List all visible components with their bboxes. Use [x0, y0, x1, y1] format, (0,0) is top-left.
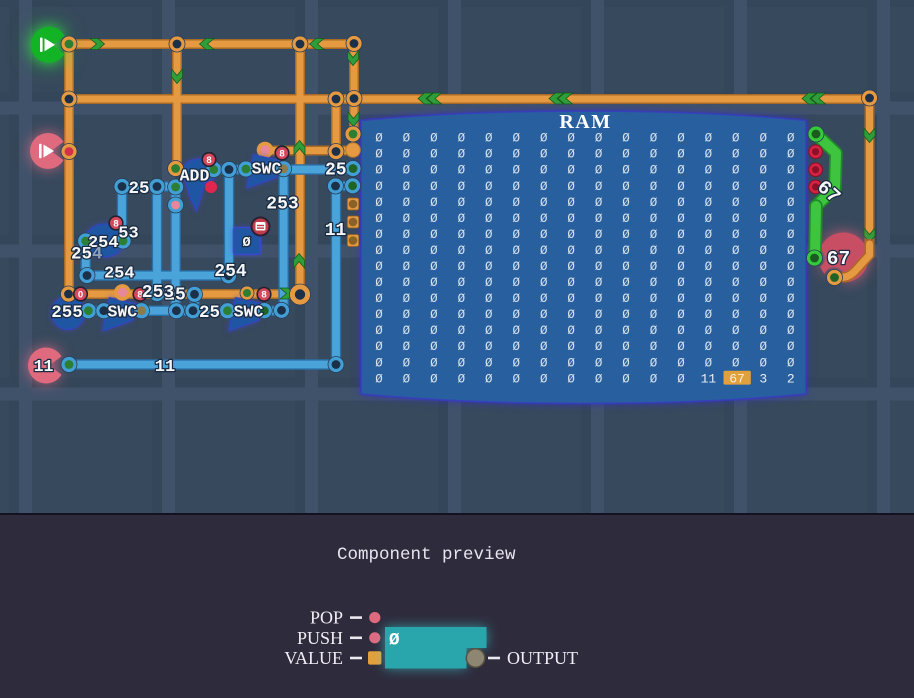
svg-text:RAM: RAM — [559, 111, 611, 133]
svg-text:Ø: Ø — [512, 164, 520, 178]
svg-text:Ø: Ø — [403, 164, 411, 178]
svg-text:ADD: ADD — [180, 167, 210, 186]
svg-text:Ø: Ø — [540, 212, 548, 226]
svg-text:67: 67 — [729, 371, 745, 386]
svg-text:Ø: Ø — [705, 276, 713, 290]
svg-text:67: 67 — [827, 248, 850, 270]
svg-text:Ø: Ø — [375, 196, 383, 210]
svg-text:Ø: Ø — [540, 292, 548, 306]
svg-text:Ø: Ø — [485, 212, 493, 226]
svg-text:Ø: Ø — [622, 372, 630, 386]
svg-text:25: 25 — [128, 179, 149, 199]
svg-text:Ø: Ø — [760, 244, 768, 258]
svg-text:Ø: Ø — [403, 180, 411, 194]
svg-text:Ø: Ø — [622, 356, 630, 370]
svg-text:Ø: Ø — [512, 132, 520, 146]
svg-text:Ø: Ø — [732, 212, 740, 226]
svg-text:254: 254 — [104, 265, 135, 284]
svg-text:Ø: Ø — [512, 292, 520, 306]
svg-text:Ø: Ø — [540, 228, 548, 242]
svg-text:Ø: Ø — [650, 292, 658, 306]
svg-text:Ø: Ø — [458, 308, 466, 322]
svg-text:Ø: Ø — [430, 324, 438, 338]
svg-text:Ø: Ø — [677, 372, 685, 386]
svg-text:Ø: Ø — [567, 196, 575, 210]
svg-text:Ø: Ø — [650, 260, 658, 274]
svg-text:11: 11 — [701, 371, 717, 386]
svg-text:Ø: Ø — [540, 180, 548, 194]
svg-text:Ø: Ø — [485, 324, 493, 338]
svg-text:Ø: Ø — [732, 276, 740, 290]
svg-text:Ø: Ø — [458, 372, 466, 386]
svg-text:Ø: Ø — [375, 276, 383, 290]
svg-text:Ø: Ø — [485, 372, 493, 386]
svg-text:Ø: Ø — [732, 260, 740, 274]
svg-text:Ø: Ø — [677, 196, 685, 210]
svg-text:Ø: Ø — [732, 196, 740, 210]
svg-text:Ø: Ø — [540, 132, 548, 146]
svg-text:Ø: Ø — [787, 340, 795, 354]
svg-text:Ø: Ø — [705, 196, 713, 210]
svg-text:Ø: Ø — [732, 148, 740, 162]
svg-text:OUTPUT: OUTPUT — [507, 648, 578, 668]
svg-text:Ø: Ø — [567, 308, 575, 322]
svg-text:25: 25 — [325, 160, 347, 180]
svg-text:Ø: Ø — [650, 308, 658, 322]
svg-text:Ø: Ø — [512, 308, 520, 322]
svg-text:Ø: Ø — [458, 244, 466, 258]
svg-text:Ø: Ø — [732, 164, 740, 178]
svg-text:Ø: Ø — [375, 324, 383, 338]
svg-text:Ø: Ø — [595, 308, 603, 322]
svg-text:Ø: Ø — [650, 244, 658, 258]
svg-text:Ø: Ø — [677, 276, 685, 290]
svg-text:Ø: Ø — [595, 340, 603, 354]
svg-text:Ø: Ø — [567, 356, 575, 370]
svg-text:Ø: Ø — [732, 292, 740, 306]
svg-text:Ø: Ø — [787, 180, 795, 194]
svg-text:Ø: Ø — [375, 372, 383, 386]
svg-text:Ø: Ø — [403, 372, 411, 386]
svg-text:Ø: Ø — [705, 180, 713, 194]
svg-text:Ø: Ø — [595, 356, 603, 370]
svg-text:Ø: Ø — [485, 228, 493, 242]
svg-text:Ø: Ø — [760, 340, 768, 354]
svg-text:Ø: Ø — [732, 324, 740, 338]
svg-text:Ø: Ø — [732, 228, 740, 242]
svg-text:Ø: Ø — [485, 132, 493, 146]
svg-text:Ø: Ø — [430, 196, 438, 210]
svg-text:Ø: Ø — [375, 180, 383, 194]
svg-text:Ø: Ø — [760, 308, 768, 322]
svg-text:Ø: Ø — [430, 244, 438, 258]
svg-text:Ø: Ø — [540, 372, 548, 386]
svg-text:Ø: Ø — [650, 180, 658, 194]
svg-text:Ø: Ø — [540, 324, 548, 338]
svg-text:Ø: Ø — [677, 212, 685, 226]
svg-text:Ø: Ø — [567, 228, 575, 242]
svg-text:Ø: Ø — [403, 148, 411, 162]
svg-text:Ø: Ø — [403, 356, 411, 370]
svg-text:Ø: Ø — [787, 324, 795, 338]
svg-text:Ø: Ø — [375, 340, 383, 354]
svg-text:Ø: Ø — [595, 260, 603, 274]
svg-text:Ø: Ø — [403, 228, 411, 242]
svg-text:Ø: Ø — [430, 292, 438, 306]
svg-text:53: 53 — [118, 224, 138, 243]
svg-text:Ø: Ø — [567, 212, 575, 226]
svg-text:Ø: Ø — [512, 212, 520, 226]
svg-text:Ø: Ø — [705, 244, 713, 258]
svg-text:Ø: Ø — [760, 356, 768, 370]
svg-text:Ø: Ø — [567, 260, 575, 274]
svg-text:8: 8 — [206, 155, 211, 166]
svg-text:Ø: Ø — [650, 196, 658, 210]
svg-text:Ø: Ø — [375, 308, 383, 322]
svg-text:Ø: Ø — [677, 340, 685, 354]
svg-text:Ø: Ø — [705, 132, 713, 146]
svg-text:Ø: Ø — [787, 132, 795, 146]
svg-text:Ø: Ø — [760, 196, 768, 210]
svg-text:Ø: Ø — [458, 180, 466, 194]
svg-text:Ø: Ø — [567, 148, 575, 162]
svg-text:11: 11 — [325, 221, 347, 241]
svg-text:Ø: Ø — [458, 148, 466, 162]
svg-text:Ø: Ø — [705, 148, 713, 162]
svg-text:Ø: Ø — [375, 260, 383, 274]
svg-text:Ø: Ø — [705, 340, 713, 354]
svg-text:Ø: Ø — [677, 244, 685, 258]
svg-text:Ø: Ø — [732, 132, 740, 146]
svg-text:11: 11 — [34, 357, 54, 376]
svg-text:Ø: Ø — [485, 164, 493, 178]
svg-text:Ø: Ø — [622, 228, 630, 242]
svg-text:Ø: Ø — [705, 324, 713, 338]
svg-text:Ø: Ø — [512, 260, 520, 274]
svg-text:Ø: Ø — [595, 324, 603, 338]
svg-text:Ø: Ø — [760, 292, 768, 306]
svg-text:Ø: Ø — [595, 196, 603, 210]
svg-text:Ø: Ø — [622, 196, 630, 210]
svg-text:Ø: Ø — [485, 340, 493, 354]
svg-text:PUSH: PUSH — [297, 628, 343, 648]
svg-text:Ø: Ø — [485, 292, 493, 306]
svg-text:Ø: Ø — [567, 164, 575, 178]
svg-text:Ø: Ø — [403, 212, 411, 226]
svg-text:8: 8 — [279, 148, 284, 159]
svg-text:Ø: Ø — [622, 340, 630, 354]
svg-text:Ø: Ø — [705, 164, 713, 178]
svg-text:Ø: Ø — [403, 292, 411, 306]
svg-text:Ø: Ø — [512, 196, 520, 210]
svg-text:Ø: Ø — [458, 260, 466, 274]
svg-text:Ø: Ø — [760, 228, 768, 242]
svg-text:255: 255 — [51, 303, 83, 323]
svg-text:Ø: Ø — [430, 164, 438, 178]
svg-text:Ø: Ø — [485, 148, 493, 162]
svg-text:Ø: Ø — [650, 356, 658, 370]
svg-text:SWC: SWC — [107, 302, 137, 321]
svg-text:Ø: Ø — [595, 132, 603, 146]
svg-text:Ø: Ø — [512, 180, 520, 194]
svg-text:Ø: Ø — [430, 228, 438, 242]
svg-text:0: 0 — [78, 289, 83, 300]
svg-text:Ø: Ø — [760, 276, 768, 290]
svg-text:Ø: Ø — [677, 324, 685, 338]
svg-text:Ø: Ø — [430, 340, 438, 354]
svg-text:Ø: Ø — [622, 132, 630, 146]
svg-text:Ø: Ø — [375, 212, 383, 226]
svg-text:Ø: Ø — [622, 260, 630, 274]
svg-text:Ø: Ø — [732, 244, 740, 258]
svg-text:Ø: Ø — [760, 180, 768, 194]
svg-text:Ø: Ø — [430, 212, 438, 226]
svg-text:Ø: Ø — [458, 228, 466, 242]
svg-text:Ø: Ø — [760, 164, 768, 178]
svg-text:Ø: Ø — [595, 148, 603, 162]
svg-text:Ø: Ø — [760, 132, 768, 146]
svg-text:Ø: Ø — [512, 340, 520, 354]
svg-text:25: 25 — [199, 303, 220, 323]
svg-text:Ø: Ø — [389, 631, 400, 651]
svg-text:Ø: Ø — [430, 276, 438, 290]
svg-text:Ø: Ø — [485, 244, 493, 258]
svg-text:Ø: Ø — [458, 340, 466, 354]
svg-text:Ø: Ø — [403, 276, 411, 290]
svg-text:Ø: Ø — [512, 372, 520, 386]
svg-text:Ø: Ø — [403, 308, 411, 322]
svg-text:Ø: Ø — [567, 372, 575, 386]
svg-text:Ø: Ø — [485, 260, 493, 274]
svg-text:Ø: Ø — [567, 244, 575, 258]
svg-text:Ø: Ø — [458, 324, 466, 338]
svg-text:Ø: Ø — [787, 260, 795, 274]
svg-text:Ø: Ø — [458, 356, 466, 370]
svg-text:Ø: Ø — [622, 308, 630, 322]
svg-text:Ø: Ø — [485, 356, 493, 370]
svg-text:Ø: Ø — [375, 244, 383, 258]
svg-text:Ø: Ø — [458, 132, 466, 146]
svg-text:Ø: Ø — [595, 164, 603, 178]
svg-text:Ø: Ø — [787, 228, 795, 242]
svg-text:Ø: Ø — [512, 356, 520, 370]
svg-text:Ø: Ø — [567, 180, 575, 194]
svg-text:Ø: Ø — [787, 164, 795, 178]
svg-text:Ø: Ø — [512, 324, 520, 338]
svg-text:Ø: Ø — [705, 212, 713, 226]
svg-text:Ø: Ø — [650, 372, 658, 386]
svg-text:Ø: Ø — [595, 212, 603, 226]
svg-text:Ø: Ø — [540, 196, 548, 210]
svg-text:Ø: Ø — [403, 196, 411, 210]
svg-text:Ø: Ø — [677, 148, 685, 162]
svg-text:Ø: Ø — [595, 276, 603, 290]
svg-text:Ø: Ø — [677, 164, 685, 178]
svg-text:Ø: Ø — [732, 340, 740, 354]
svg-text:Ø: Ø — [403, 324, 411, 338]
svg-text:Ø: Ø — [485, 308, 493, 322]
svg-text:Ø: Ø — [540, 276, 548, 290]
svg-text:Ø: Ø — [595, 180, 603, 194]
svg-text:Ø: Ø — [458, 276, 466, 290]
svg-text:Ø: Ø — [622, 180, 630, 194]
svg-text:Ø: Ø — [705, 308, 713, 322]
svg-text:Ø: Ø — [622, 212, 630, 226]
svg-text:Ø: Ø — [375, 292, 383, 306]
svg-text:Ø: Ø — [622, 292, 630, 306]
svg-text:Ø: Ø — [430, 372, 438, 386]
svg-text:Ø: Ø — [458, 212, 466, 226]
svg-text:Ø: Ø — [595, 292, 603, 306]
svg-text:Ø: Ø — [512, 148, 520, 162]
svg-text:Ø: Ø — [787, 244, 795, 258]
svg-text:Ø: Ø — [732, 356, 740, 370]
svg-text:Ø: Ø — [622, 148, 630, 162]
svg-text:Ø: Ø — [787, 356, 795, 370]
svg-text:Ø: Ø — [760, 148, 768, 162]
svg-text:Ø: Ø — [430, 260, 438, 274]
svg-text:Ø: Ø — [567, 340, 575, 354]
svg-text:Ø: Ø — [760, 212, 768, 226]
svg-text:Ø: Ø — [705, 260, 713, 274]
svg-text:Ø: Ø — [650, 324, 658, 338]
svg-text:3: 3 — [759, 371, 767, 386]
svg-text:253: 253 — [266, 194, 298, 214]
svg-text:Ø: Ø — [375, 356, 383, 370]
svg-text:Ø: Ø — [732, 180, 740, 194]
svg-text:254: 254 — [71, 244, 103, 264]
svg-text:Ø: Ø — [567, 292, 575, 306]
svg-text:11: 11 — [155, 358, 175, 377]
svg-text:Ø: Ø — [375, 164, 383, 178]
svg-text:Ø: Ø — [512, 228, 520, 242]
svg-text:Ø: Ø — [567, 132, 575, 146]
svg-text:Ø: Ø — [375, 148, 383, 162]
svg-text:Ø: Ø — [650, 276, 658, 290]
svg-text:Ø: Ø — [403, 132, 411, 146]
svg-text:Ø: Ø — [430, 356, 438, 370]
svg-text:Ø: Ø — [540, 244, 548, 258]
svg-text:Ø: Ø — [375, 228, 383, 242]
svg-text:Ø: Ø — [787, 276, 795, 290]
svg-text:VALUE: VALUE — [284, 648, 343, 668]
svg-text:POP: POP — [310, 608, 343, 628]
svg-text:Ø: Ø — [705, 292, 713, 306]
svg-text:Ø: Ø — [485, 196, 493, 210]
svg-text:Ø: Ø — [760, 324, 768, 338]
svg-text:Ø: Ø — [567, 324, 575, 338]
svg-text:Ø: Ø — [540, 356, 548, 370]
svg-text:Ø: Ø — [595, 372, 603, 386]
svg-text:2: 2 — [787, 371, 795, 386]
svg-text:Ø: Ø — [540, 340, 548, 354]
svg-text:Ø: Ø — [677, 228, 685, 242]
svg-text:254: 254 — [214, 262, 247, 282]
svg-text:Ø: Ø — [622, 164, 630, 178]
svg-text:Ø: Ø — [677, 308, 685, 322]
svg-text:Ø: Ø — [567, 276, 575, 290]
svg-text:Ø: Ø — [650, 212, 658, 226]
svg-text:Ø: Ø — [458, 164, 466, 178]
svg-text:Ø: Ø — [677, 132, 685, 146]
svg-text:Ø: Ø — [375, 132, 383, 146]
svg-text:Ø: Ø — [677, 292, 685, 306]
svg-text:Ø: Ø — [458, 196, 466, 210]
svg-text:Ø: Ø — [787, 212, 795, 226]
svg-text:Ø: Ø — [622, 276, 630, 290]
svg-text:Ø: Ø — [650, 228, 658, 242]
svg-text:Ø: Ø — [622, 324, 630, 338]
svg-text:Ø: Ø — [787, 196, 795, 210]
svg-text:Ø: Ø — [403, 260, 411, 274]
svg-text:Ø: Ø — [705, 228, 713, 242]
svg-text:Ø: Ø — [540, 148, 548, 162]
svg-text:Ø: Ø — [540, 164, 548, 178]
svg-text:Ø: Ø — [677, 356, 685, 370]
svg-text:Ø: Ø — [512, 244, 520, 258]
svg-text:Ø: Ø — [485, 180, 493, 194]
svg-text:Ø: Ø — [540, 260, 548, 274]
svg-text:Ø: Ø — [787, 308, 795, 322]
svg-text:Ø: Ø — [650, 132, 658, 146]
svg-text:Ø: Ø — [677, 260, 685, 274]
svg-text:Ø: Ø — [677, 180, 685, 194]
svg-text:Ø: Ø — [650, 340, 658, 354]
svg-text:Ø: Ø — [430, 132, 438, 146]
svg-text:Ø: Ø — [430, 148, 438, 162]
svg-text:Ø: Ø — [458, 292, 466, 306]
svg-text:SWC: SWC — [252, 159, 282, 178]
svg-text:Ø: Ø — [485, 276, 493, 290]
svg-text:Ø: Ø — [650, 148, 658, 162]
svg-text:Ø: Ø — [650, 164, 658, 178]
svg-text:Ø: Ø — [430, 308, 438, 322]
svg-text:SWC: SWC — [234, 302, 264, 321]
svg-text:Ø: Ø — [787, 292, 795, 306]
svg-text:Ø: Ø — [540, 308, 548, 322]
svg-text:Ø: Ø — [403, 244, 411, 258]
svg-text:8: 8 — [261, 290, 266, 301]
svg-text:Ø: Ø — [732, 308, 740, 322]
svg-text:Ø: Ø — [512, 276, 520, 290]
svg-text:Ø: Ø — [595, 228, 603, 242]
svg-text:Ø: Ø — [705, 356, 713, 370]
svg-text:Ø: Ø — [760, 260, 768, 274]
svg-text:Ø: Ø — [595, 244, 603, 258]
svg-text:253: 253 — [142, 283, 174, 303]
svg-text:Ø: Ø — [787, 148, 795, 162]
svg-text:Ø: Ø — [242, 236, 250, 251]
svg-text:Ø: Ø — [403, 340, 411, 354]
svg-text:Ø: Ø — [430, 180, 438, 194]
svg-text:Ø: Ø — [622, 244, 630, 258]
